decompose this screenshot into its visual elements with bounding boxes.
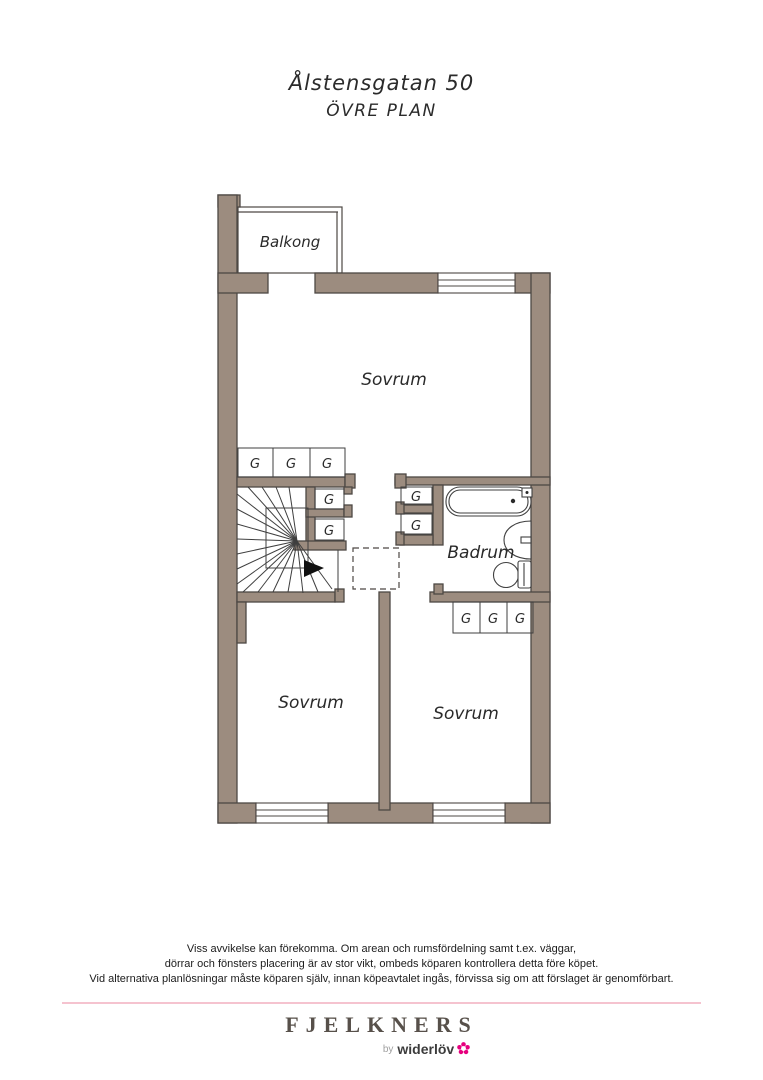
disclaimer-line: dörrar och fönsters placering är av stor… [0, 957, 763, 972]
bathroom-fixtures [446, 487, 532, 588]
wall-bedroom-divider [379, 592, 390, 810]
floor-plan-drawing: Balkong Sovrum Badrum Sovrum Sovrum G G … [0, 0, 763, 1080]
floor-plan-page: Ålstensgatan 50 ÖVRE PLAN [0, 0, 763, 1080]
wall-bedroom-left-top [237, 592, 335, 602]
brand-byline: bywiderlöv [0, 1039, 763, 1058]
byline-prefix: by [383, 1044, 394, 1055]
room-label-bedroom-right: Sovrum [433, 704, 499, 724]
wardrobe-label: G [286, 457, 296, 472]
room-label-bedroom-top: Sovrum [361, 370, 427, 390]
toilet [494, 561, 532, 588]
wardrobe-label: G [322, 457, 332, 472]
wardrobe-label: G [324, 524, 334, 539]
brand-name: FJELKNERS [285, 1012, 478, 1038]
disclaimer-line: Viss avvikelse kan förekomma. Om arean o… [0, 942, 763, 957]
window-bottom-right [433, 803, 505, 823]
wall-bottom-a [218, 803, 256, 823]
window-top [438, 273, 515, 293]
wardrobe-label: G [250, 457, 260, 472]
wall-top-a [218, 273, 268, 293]
wall-right [531, 273, 550, 823]
wall-bottom-c [505, 803, 550, 823]
byline-name: widerlöv [397, 1041, 454, 1057]
door-jamb [434, 584, 443, 594]
pink-divider [62, 1002, 701, 1004]
brand-block: FJELKNERS bywiderlöv [0, 1012, 763, 1058]
door-jamb [395, 474, 406, 488]
wall-under-wardrobes [237, 477, 345, 487]
wardrobe-label: G [488, 612, 498, 627]
wall-top-b [315, 273, 438, 293]
window-bottom-left [256, 803, 328, 823]
wall-pilaster [237, 602, 246, 643]
door-jamb [335, 589, 344, 602]
widerlov-flower-icon [457, 1042, 470, 1055]
bathtub [446, 487, 532, 516]
room-label-bathroom: Badrum [447, 543, 514, 563]
wall-bathroom-bottom [430, 592, 550, 602]
wall-over-bathroom [395, 477, 550, 485]
room-label-bedroom-left: Sovrum [278, 693, 344, 713]
door-jamb [345, 474, 355, 488]
wardrobe-label: G [411, 519, 421, 534]
room-label-balcony: Balkong [260, 233, 321, 251]
landing-dashed-outline [353, 548, 399, 589]
footer: Viss avvikelse kan förekomma. Om arean o… [0, 942, 763, 987]
wardrobe-label: G [461, 612, 471, 627]
disclaimer: Viss avvikelse kan förekomma. Om arean o… [0, 942, 763, 987]
disclaimer-line: Vid alternativa planlösningar måste köpa… [0, 972, 763, 987]
wardrobe-label: G [411, 490, 421, 505]
wardrobe-label: G [515, 612, 525, 627]
wardrobe-label: G [324, 493, 334, 508]
